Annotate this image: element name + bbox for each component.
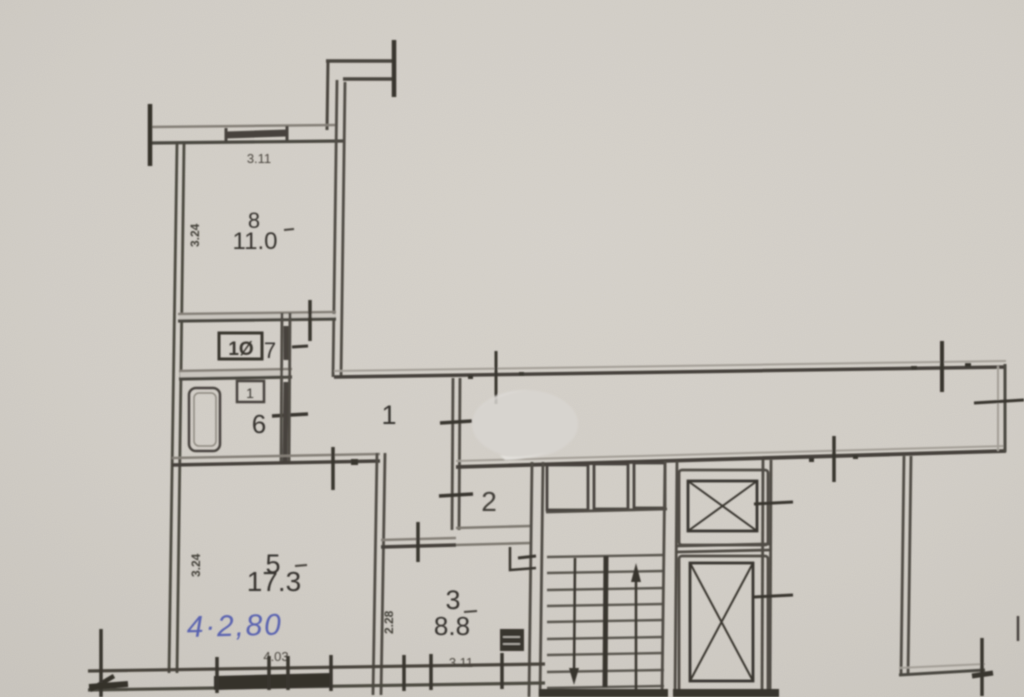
svg-text:3.24: 3.24 <box>188 223 202 247</box>
svg-text:3.11: 3.11 <box>247 151 271 166</box>
svg-text:8.8: 8.8 <box>434 611 470 641</box>
svg-text:11.0: 11.0 <box>233 228 278 255</box>
svg-text:4·2,80: 4·2,80 <box>186 608 283 643</box>
svg-text:1: 1 <box>381 400 396 430</box>
svg-text:2.28: 2.28 <box>382 610 396 634</box>
svg-text:3.24: 3.24 <box>189 553 203 577</box>
svg-text:6: 6 <box>252 409 266 439</box>
svg-text:4.03: 4.03 <box>263 649 288 664</box>
svg-text:1: 1 <box>246 385 254 401</box>
svg-text:1Ø: 1Ø <box>228 339 253 360</box>
svg-text:17.3: 17.3 <box>247 566 302 597</box>
svg-text:2: 2 <box>481 486 497 517</box>
svg-text:7: 7 <box>264 338 276 363</box>
svg-text:3.11: 3.11 <box>449 655 473 670</box>
